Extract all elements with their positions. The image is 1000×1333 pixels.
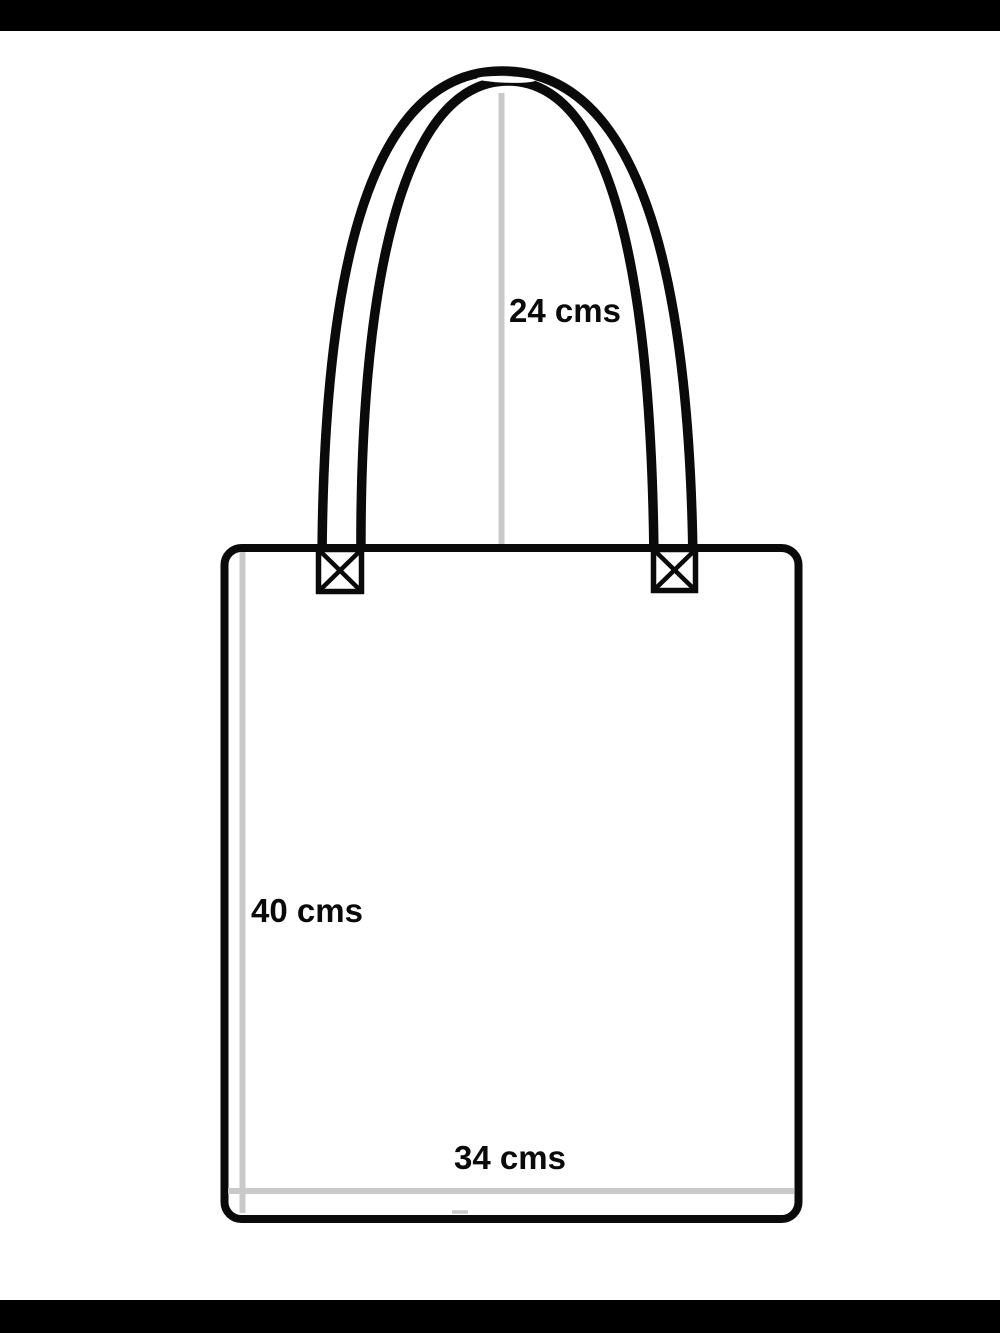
bag-body-outline xyxy=(225,548,799,1219)
handle-height-label: 24 cms xyxy=(509,292,621,330)
bag-width-label: 34 cms xyxy=(454,1139,566,1177)
tote-bag-diagram-page: 24 cms 40 cms 34 cms xyxy=(0,0,1000,1333)
bag-height-label: 40 cms xyxy=(251,892,363,930)
tote-bag-line-drawing xyxy=(0,0,1000,1333)
